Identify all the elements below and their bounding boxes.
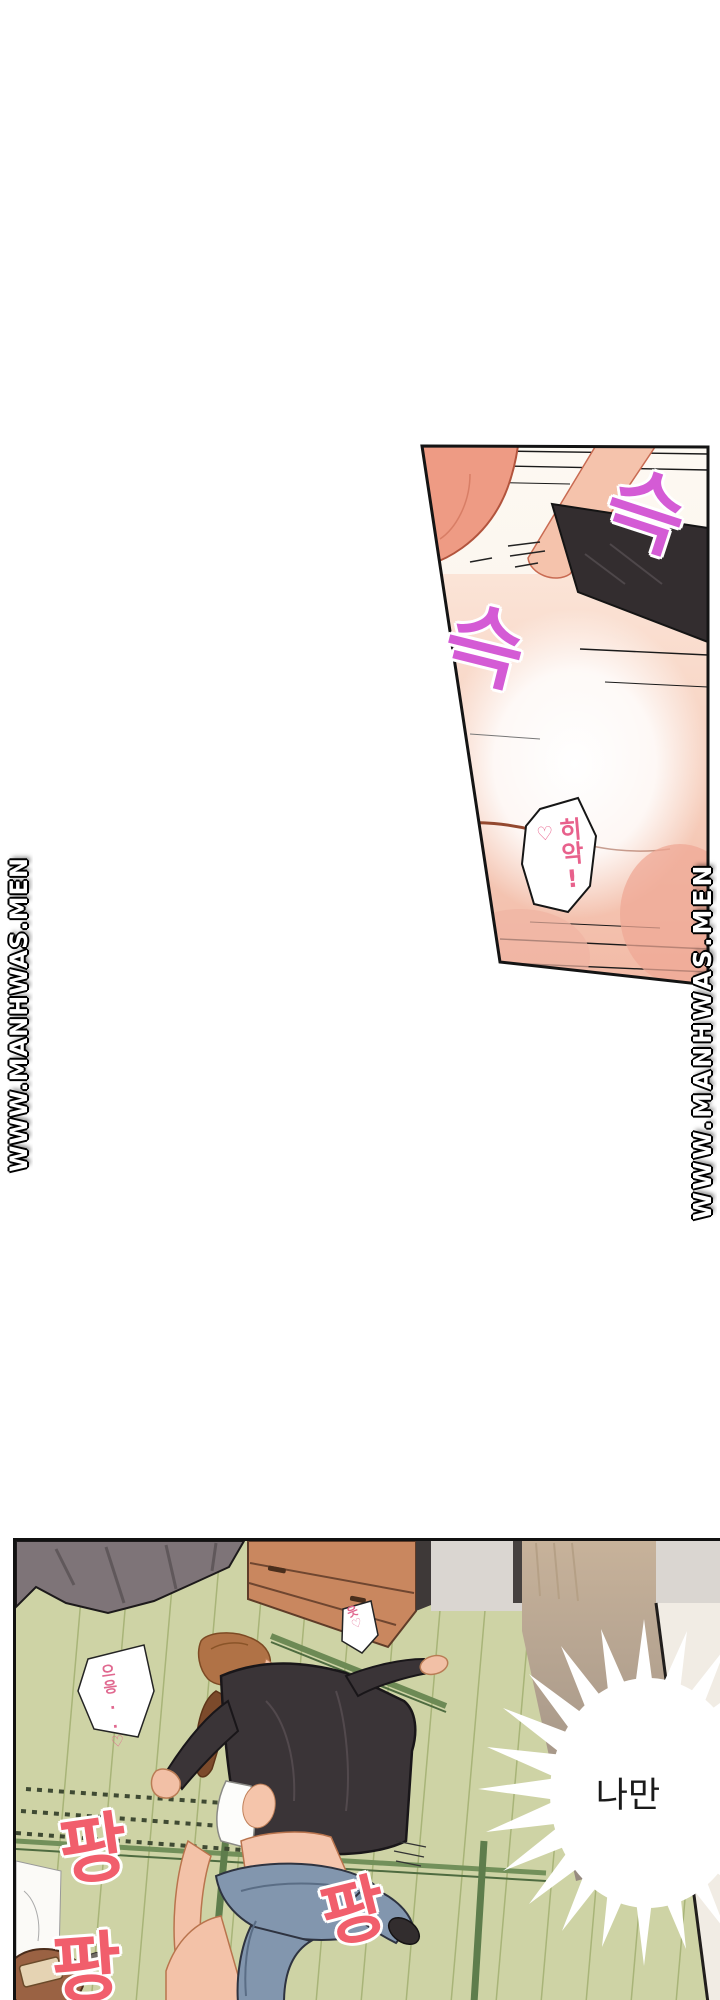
sfx-pang-1: 팡	[55, 1809, 133, 1892]
speech-bubble-text: 나만	[568, 1767, 688, 1818]
bottom-panel: 으응..♡ 읏♡ 팡 팡 팡 나만	[13, 1538, 720, 2000]
sfx-pang-2: 팡	[49, 1929, 124, 2000]
watermark-left: WWW.MANHWAS.MEN	[2, 824, 36, 1172]
gasp-bubble-text: 히악! ♡	[533, 816, 587, 896]
comic-page: 슥 슥 히악! ♡ WWW.MANHWAS.MEN WWW.MANHWAS.ME…	[0, 0, 720, 2000]
watermark-right: WWW.MANHWAS.MEN	[686, 820, 720, 1220]
